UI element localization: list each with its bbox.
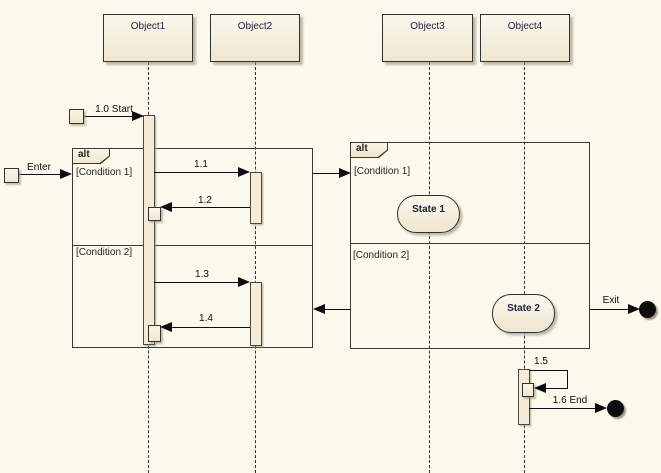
arrowhead-left-icon — [534, 383, 546, 393]
state2-node[interactable]: State 2 — [492, 294, 555, 333]
fragment-link-top-line[interactable] — [313, 173, 339, 174]
object2-label: Object2 — [238, 21, 272, 32]
fragment-link-bottom-line[interactable] — [325, 309, 350, 310]
alt-operator-label-left: alt — [78, 149, 90, 160]
alt-fragment-left[interactable]: alt [Condition 1] [Condition 2] — [72, 148, 313, 348]
message-1-5-line-side[interactable] — [567, 370, 568, 388]
end-terminator-node[interactable] — [607, 400, 624, 417]
state2-label: State 2 — [507, 303, 540, 314]
enter-message-label: Enter — [27, 162, 51, 173]
alt-operator-pentagon-right: alt — [350, 142, 388, 158]
arrowhead-right-icon — [339, 168, 351, 178]
object4-box[interactable]: Object4 — [480, 14, 570, 62]
message-1-1-line[interactable] — [154, 172, 238, 173]
message-1-6-label: 1.6 End — [553, 395, 587, 406]
condition1-label-left: [Condition 1] — [76, 167, 132, 178]
object2-box[interactable]: Object2 — [210, 14, 300, 62]
arrowhead-right-icon — [238, 167, 250, 177]
exit-terminator-node[interactable] — [639, 301, 656, 318]
condition2-label-left: [Condition 2] — [76, 247, 132, 258]
start-message-label: 1.0 Start — [95, 104, 133, 115]
arrowhead-right-icon — [60, 169, 72, 179]
activation-object1[interactable] — [143, 115, 155, 345]
activation-object4[interactable] — [518, 369, 530, 425]
object3-label: Object3 — [410, 21, 444, 32]
activation-object2-top[interactable] — [250, 172, 262, 224]
activation-object2-bottom[interactable] — [250, 282, 262, 346]
message-1-3-label: 1.3 — [195, 269, 209, 280]
condition2-label-right: [Condition 2] — [353, 250, 409, 261]
arrowhead-right-icon — [238, 277, 250, 287]
message-1-5-line-return[interactable] — [546, 388, 568, 389]
nested-activation-1-5[interactable] — [522, 383, 534, 397]
fragment-divider-right — [351, 243, 589, 244]
arrowhead-right-icon — [132, 111, 144, 121]
start-endpoint-square[interactable] — [69, 109, 84, 124]
object3-box[interactable]: Object3 — [382, 14, 473, 62]
enter-endpoint-square[interactable] — [4, 168, 19, 183]
message-1-2-line[interactable] — [172, 207, 250, 208]
enter-message-line[interactable] — [17, 174, 60, 175]
message-1-2-label: 1.2 — [198, 195, 212, 206]
arrowhead-right-icon — [595, 403, 607, 413]
message-1-5-label: 1.5 — [534, 356, 548, 367]
exit-message-line[interactable] — [590, 309, 628, 310]
message-1-4-label: 1.4 — [199, 313, 213, 324]
state1-label: State 1 — [412, 204, 445, 215]
object4-label: Object4 — [508, 21, 542, 32]
sequence-diagram-canvas: Object1 Object2 Object3 Object4 alt [Con… — [0, 0, 661, 473]
fragment-divider-left — [73, 245, 312, 246]
alt-operator-pentagon-left: alt — [72, 148, 110, 164]
message-1-4-line[interactable] — [172, 327, 250, 328]
object1-label: Object1 — [131, 21, 165, 32]
arrowhead-left-icon — [313, 304, 325, 314]
message-1-3-line[interactable] — [154, 282, 238, 283]
condition1-label-right: [Condition 1] — [354, 166, 410, 177]
message-1-1-label: 1.1 — [194, 159, 208, 170]
message-1-5-line-top[interactable] — [529, 370, 568, 371]
state1-node[interactable]: State 1 — [397, 195, 460, 233]
arrowhead-left-icon — [160, 202, 172, 212]
exit-message-label: Exit — [603, 295, 620, 306]
start-message-line[interactable] — [82, 116, 132, 117]
object1-box[interactable]: Object1 — [103, 14, 193, 62]
alt-operator-label-right: alt — [356, 143, 368, 154]
message-1-6-line[interactable] — [529, 408, 595, 409]
arrowhead-left-icon — [160, 322, 172, 332]
